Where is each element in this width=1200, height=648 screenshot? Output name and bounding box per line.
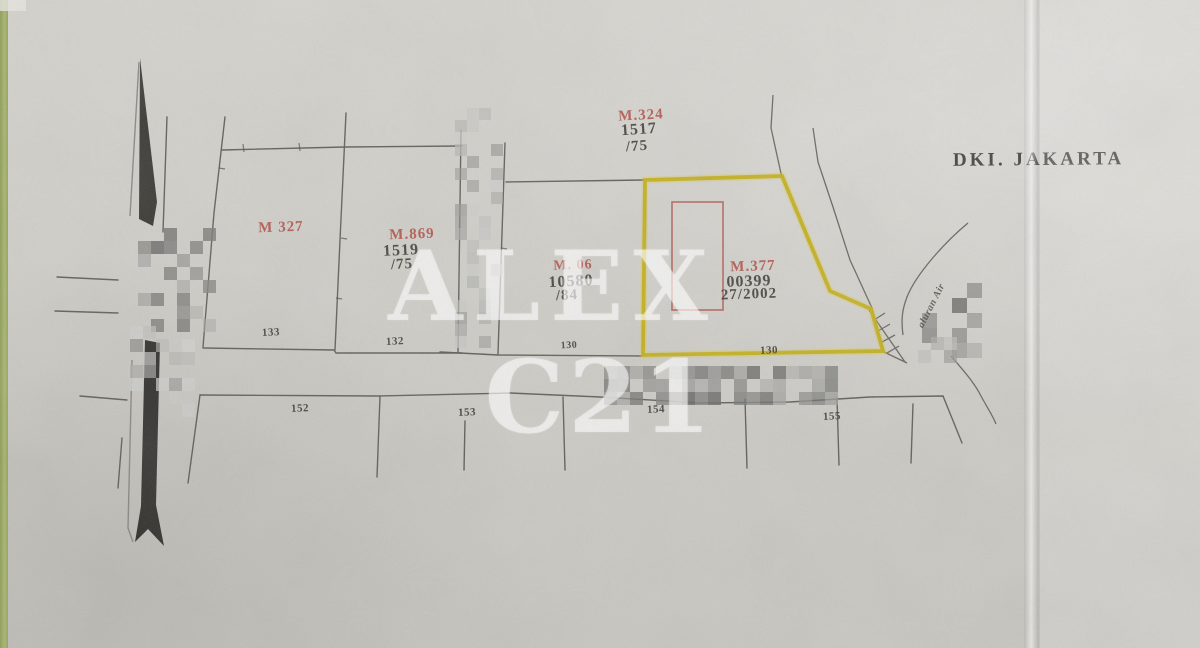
parcel-number-label: 27/2002 [721,287,778,304]
parcel-number-label: /75 [391,257,414,273]
plot-number-label: 154 [647,404,665,416]
plot-number-label: 130 [760,345,778,357]
parcel-number-label: 1517 [620,121,657,139]
parcel-id-label: M 327 [258,220,304,237]
plot-number-label: 153 [458,407,476,419]
plot-number-label: 130 [560,341,577,352]
plot-number-label: 133 [262,327,281,339]
plot-number-label: 152 [291,403,309,415]
plot-number-label: 132 [386,336,405,348]
scanned-survey-map: M.324M 327M.869M. 06M.3771517/751519/751… [0,0,1200,648]
plot-number-label: 155 [823,411,842,423]
parcel-number-label: /84 [556,288,579,304]
parcel-number-label: /75 [625,139,648,156]
region-stamp: DKI. JAKARTA [953,148,1124,171]
map-label-layer: M.324M 327M.869M. 06M.3771517/751519/751… [0,0,1200,648]
waterway-label: aluran Air [917,282,948,330]
